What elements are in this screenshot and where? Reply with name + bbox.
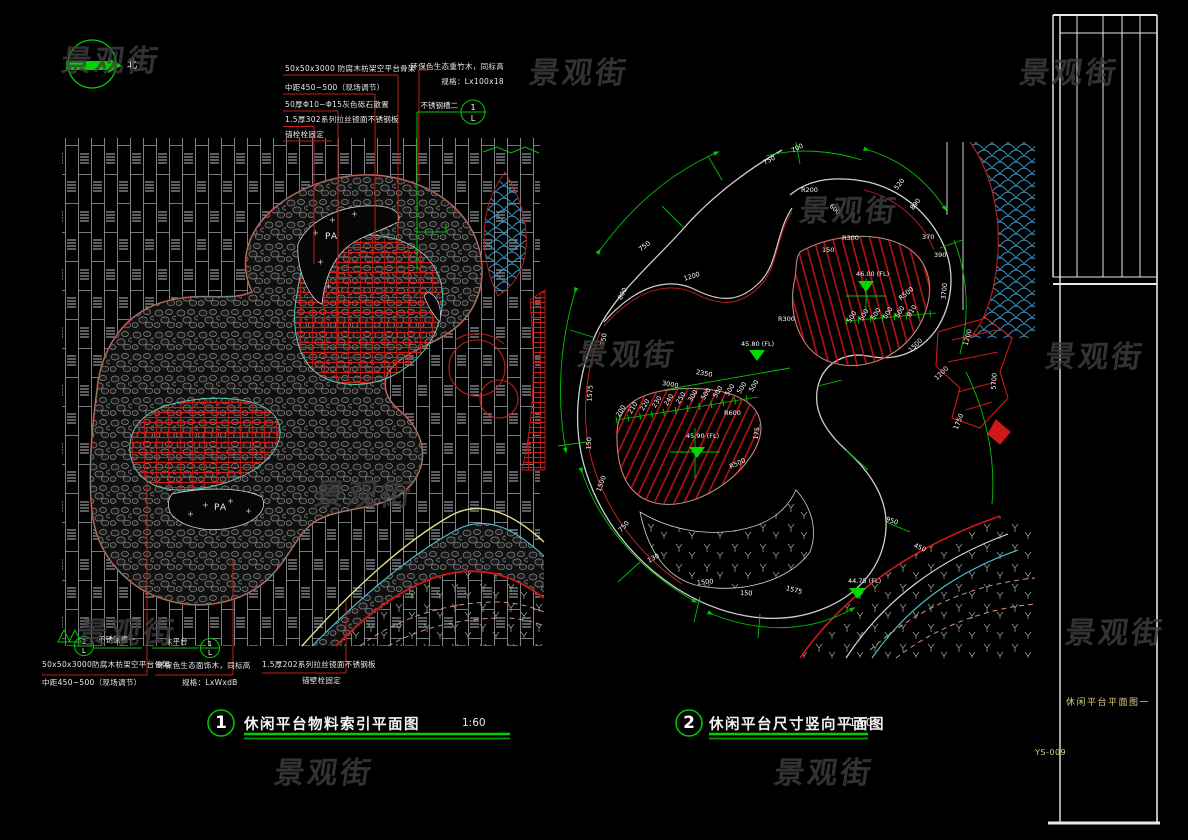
dimension-label: 5700 [991,373,999,390]
dimension-label: 390 [934,252,946,259]
detail-bubble-bottom-left: 1 L [75,637,94,656]
sheet-number: YS-009 [1035,748,1066,757]
svg-text:L: L [82,647,86,655]
north-arrow: 北 [66,40,137,88]
svg-text:L: L [471,114,476,123]
figure1-title: 休闲平台物料索引平面图 [244,713,420,734]
figure1-number: 1 [208,713,234,733]
dimension-label: 46.00 (FL) [856,271,889,278]
cad-sheet: 1 L 1 L 1 L 北 [0,0,1188,840]
dimension-label: R300 [778,316,795,323]
material-note: 50厚Φ10~Φ15灰色砾石散置 [285,100,389,109]
dimension-label: 44.75 (FL) [848,578,881,585]
material-note: 环保色生态重竹木，同标高 [400,62,504,71]
drawing-canvas: 1 L 1 L 1 L 北 [0,0,1188,840]
dimension-label: R300 [842,235,859,242]
detail-bubble-bottom-mid: 1 L [201,639,220,658]
dimension-label: R600 [724,410,741,417]
svg-text:L: L [208,649,212,657]
figure2-scale: 1:60 [849,717,873,729]
material-note: 锚壁栓固定 [302,676,341,685]
sheet-name: 休闲平台平面图一 [1066,695,1150,708]
fishscale-patch-2 [970,142,1035,338]
figure1-drawing: 1 L 1 L 1 L [42,70,545,675]
material-note: 50x50x3000 防腐木枋架空平台骨架 [285,64,416,73]
svg-text:1: 1 [82,638,86,646]
path-curve [604,208,792,322]
material-note: 中距450~500（现场调节） [42,678,141,687]
svg-text:1: 1 [470,103,475,112]
dimension-label: 150 [586,437,594,450]
material-note: 锚栓栓固定 [285,130,324,139]
dimension-label: 150 [822,247,834,254]
material-note: 环保色生态面饰木，同标高 [157,661,251,670]
material-note: 1.5厚302系列拉丝镜面不锈钢板 [285,115,399,124]
detail-bubble-top-right: 1 L [461,100,485,124]
figure1-scale: 1:60 [462,717,486,729]
dimension-label: 150 [740,590,753,597]
material-note: 规格：Lx100x18 [400,77,504,86]
callout-label: 不锈钢槽一 [98,634,136,645]
dimension-label: 370 [922,234,934,241]
material-note: 中距450~500（现场调节） [285,83,384,92]
dimension-label: 1575 [587,385,595,402]
dimension-label: 3700 [941,283,949,300]
material-note: 50x50x3000防腐木枋架空平台骨架 [42,660,170,669]
planting-label: PA [214,503,227,513]
callout-label: 木平台 [165,636,188,647]
svg-text:1: 1 [208,640,212,648]
planting-label: PA [325,232,338,242]
material-note: 1.5厚202系列拉丝镜面不锈钢板 [262,660,376,669]
dimension-label: 45.90 (FL) [686,433,719,440]
callout-label: 不锈钢槽二 [410,100,458,111]
figure2-drawing [558,142,1035,658]
figure2-number: 2 [676,713,702,733]
dimension-label: R200 [801,187,818,194]
wall-lines [947,142,963,310]
north-label: 北 [127,59,137,71]
dimension-label: 45.80 (FL) [741,341,774,348]
material-note: 规格：LxWxdB [182,678,238,687]
